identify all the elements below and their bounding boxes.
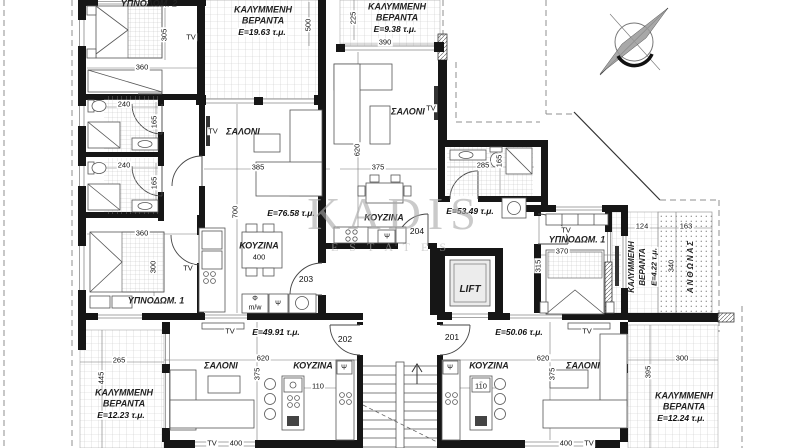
chair: [495, 379, 506, 390]
apartment-area-value: E=49.91 τ.μ.: [251, 328, 301, 337]
dim-395: 395: [644, 365, 652, 380]
dim-400: 400: [252, 253, 267, 261]
dim-500: 500: [304, 18, 312, 33]
tv-label: TV: [185, 33, 197, 41]
dim-305: 305: [160, 28, 168, 43]
dim-370: 370: [555, 247, 570, 255]
window: [76, 106, 88, 126]
room-label-living: ΣΑΛΟΝΙ: [204, 362, 238, 371]
dim-620: 620: [353, 143, 361, 158]
door-arc: [172, 156, 202, 186]
lift-label: LIFT: [459, 285, 480, 295]
dim-165: 165: [495, 154, 503, 169]
stair-stringer: [396, 362, 404, 448]
dim-390: 390: [378, 38, 393, 46]
apartment-area-value: E=50.06 τ.μ.: [494, 328, 544, 337]
dim-400: 400: [229, 439, 244, 447]
dim-110: 110: [474, 382, 488, 390]
veranda-label: ΒΕΡΑΝΤΑ: [103, 400, 145, 409]
coffee-table: [208, 376, 240, 393]
dim-620: 620: [536, 354, 551, 362]
tv-label: TV: [560, 226, 572, 234]
veranda-label: ΚΑΛΥΜΜΕΝΗ: [234, 6, 292, 15]
veranda-bottom-right-area: [628, 325, 718, 448]
coffee-table: [370, 106, 390, 144]
chair: [265, 379, 276, 390]
tv-cabinet-202: [202, 323, 244, 329]
dim-620: 620: [256, 354, 271, 362]
tv-label: TV: [583, 439, 595, 447]
dim-300: 300: [675, 354, 690, 362]
chair: [265, 394, 276, 405]
veranda-label: ΒΕΡΑΝΤΑ: [663, 403, 705, 412]
toilet: [92, 163, 106, 174]
window: [195, 440, 255, 448]
planter-label: ΑΝΘΩΝΑΣ: [687, 238, 695, 294]
chair: [265, 409, 276, 420]
window: [205, 313, 247, 320]
dim-375: 375: [371, 163, 386, 171]
sofa-201: [600, 334, 627, 406]
window: [556, 205, 602, 212]
sink: [132, 200, 158, 212]
tv-unit: [615, 246, 619, 286]
veranda-area-value: Ε=19.63 τ.μ.: [237, 28, 287, 37]
tv-label: TV: [224, 327, 236, 335]
veranda-area-value: Ε=12.24 τ.μ.: [656, 414, 706, 423]
sink: [132, 138, 158, 150]
veranda-label: ΚΑΛΥΜΜΕΝΗ: [628, 240, 636, 293]
tv-label: TV: [206, 439, 218, 447]
tv-label: TV: [425, 104, 437, 112]
dim-124: 124: [635, 222, 650, 230]
tv-label: TV: [581, 327, 593, 335]
dim-240: 240: [117, 161, 132, 169]
window: [76, 166, 88, 186]
veranda-area-value: Ε=9.38 τ.μ.: [373, 25, 418, 34]
room-label-living: ΣΑΛΟΝΙ: [391, 108, 425, 117]
dim-315: 315: [534, 259, 542, 274]
room-label-bedroom1: ΥΠΝΟΔΩΜ. 1: [128, 297, 185, 306]
room-label-living: ΣΑΛΟΝΙ: [566, 362, 600, 371]
kitchen-column-203: [199, 228, 225, 312]
veranda-label: ΒΕΡΑΝΤΑ: [242, 17, 284, 26]
dim-300: 300: [149, 260, 157, 275]
dim-110: 110: [311, 382, 325, 390]
kitchen-counter-202: [336, 360, 354, 440]
dim-165: 165: [150, 176, 158, 191]
chair: [495, 394, 506, 405]
sink-symbol: Ψ: [341, 365, 347, 372]
building-diagonal-edge: [574, 112, 660, 200]
veranda-area-value: Ε=12.23 τ.μ.: [96, 411, 146, 420]
door-arc: [171, 235, 201, 265]
room-label-bedroom2: ΥΠΝΟΔΩΜ. 2: [121, 0, 178, 9]
dim-400: 400: [559, 439, 574, 447]
tv-label: TV: [207, 127, 219, 135]
window: [76, 20, 88, 46]
window: [98, 313, 142, 320]
compass-icon: [600, 8, 668, 75]
dim-163: 163: [679, 222, 694, 230]
room-label-kitchen: ΚΟΥΖΙΝΑ: [469, 362, 509, 371]
staircase: [363, 362, 437, 448]
coffee-table: [254, 134, 280, 152]
lift-cab: [450, 260, 490, 306]
door-number-202: 202: [337, 335, 353, 344]
veranda-label: ΚΑΛΥΜΜΕΝΗ: [655, 392, 713, 401]
room-label-living: ΣΑΛΟΝΙ: [226, 128, 260, 137]
dim-700: 700: [231, 205, 239, 220]
watermark-subtitle: ESTATES: [331, 241, 457, 253]
wardrobe: [546, 214, 608, 225]
dim-385: 385: [251, 163, 266, 171]
room-label-kitchen: ΚΟΥΖΙΝΑ: [239, 242, 279, 251]
tv-label: TV: [182, 264, 194, 272]
sink-symbol: Ψ: [275, 301, 281, 308]
dim-445: 445: [97, 371, 105, 386]
dim-340: 340: [667, 259, 675, 274]
sink-symbol: Ψ: [447, 365, 453, 372]
washing-machine: [502, 198, 526, 218]
dim-360: 360: [135, 63, 150, 71]
dim-240: 240: [117, 100, 132, 108]
dim-285: 285: [476, 161, 491, 169]
veranda-area-value: Ε=4.22 τ.μ.: [650, 247, 658, 287]
door-number-203: 203: [298, 275, 314, 284]
microwave-label: m/w: [249, 305, 262, 312]
dim-360: 360: [135, 229, 150, 237]
veranda-label: ΚΑΛΥΜΜΕΝΗ: [368, 3, 426, 12]
room-label-kitchen: ΚΟΥΖΙΝΑ: [293, 362, 333, 371]
veranda-label: ΚΑΛΥΜΜΕΝΗ: [95, 389, 153, 398]
toilet: [92, 101, 106, 112]
dim-375: 375: [253, 367, 261, 382]
dim-225: 225: [349, 11, 357, 26]
dim-375: 375: [548, 367, 556, 382]
veranda-label: ΒΕΡΑΝΤΑ: [639, 247, 647, 286]
room-label-bedroom1: ΥΠΝΟΔΩΜ. 1: [549, 236, 606, 245]
chair: [495, 409, 506, 420]
phi-symbol: Φ: [252, 296, 258, 303]
window: [76, 246, 88, 290]
veranda-label: ΒΕΡΑΝΤΑ: [376, 14, 418, 23]
dim-265: 265: [112, 356, 127, 364]
watermark-title: KADIS: [307, 191, 483, 237]
door-number-201: 201: [444, 333, 460, 342]
floor-plan: KADIS ESTATES ΥΠΝΟΔΩΜ. 2 305 TV ΚΑΛΥΜΜΕΝ…: [0, 0, 796, 448]
dim-165: 165: [150, 115, 158, 130]
toilet-tank: [490, 147, 502, 152]
kitchen-counter-201: [442, 360, 460, 440]
